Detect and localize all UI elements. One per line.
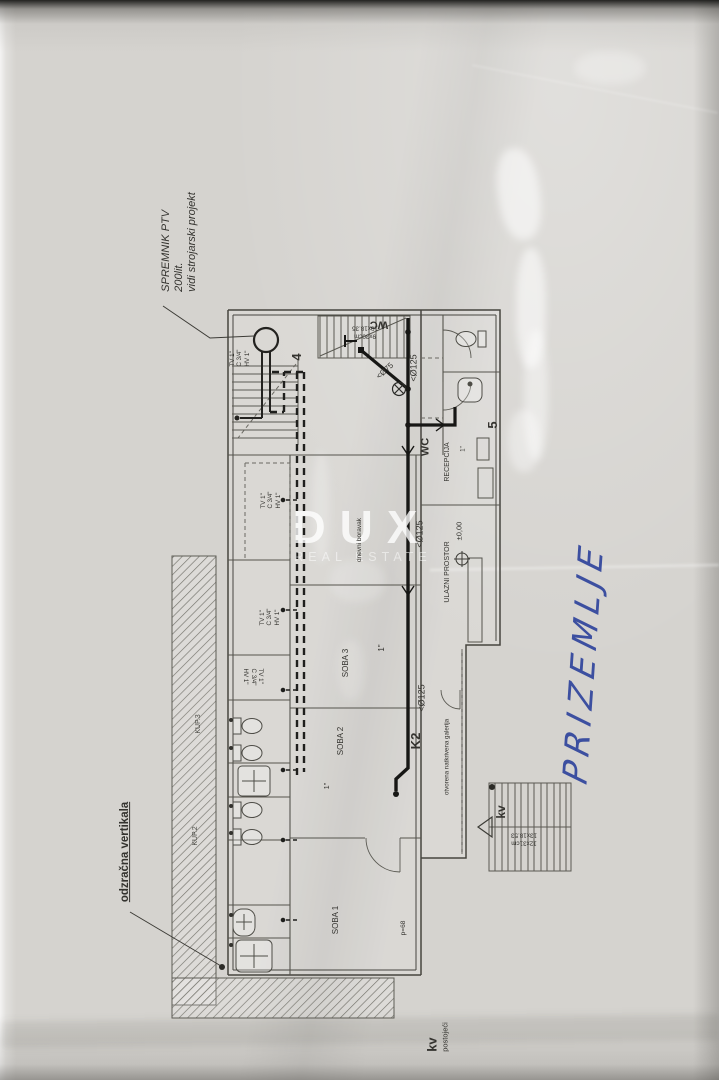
pipe-label-one-inch-2: 1" [324, 783, 332, 789]
toilet-icon [233, 718, 262, 734]
annotation-spremnik-line2: 200lit. [173, 192, 186, 292]
label-ulazni-prostor: ULAZNI PROSTOR [444, 541, 452, 602]
pipe-label-one-inch-3: 1" [460, 446, 467, 451]
fitting-labels-a: TV 1" C 3/4" HV 1" [229, 350, 251, 367]
pipe-label-d125-1: <Ø125 [409, 354, 420, 381]
annotation-spremnik-line3: vidi strojarski projekt [187, 192, 200, 292]
toilet-icon [456, 331, 486, 347]
annotation-spremnik: SPREMNIK PTV 200lit. vidi strojarski pro… [160, 192, 200, 292]
fitting-c: C 3/4" [249, 669, 256, 686]
fitting-hv: HV 1" [242, 669, 249, 686]
stairs-upper-line1: 9x30cm [352, 332, 378, 340]
mark-4: 4 [289, 353, 305, 360]
label-soba3: SOBA 3 [341, 649, 351, 677]
fitting-tv: TV 1" [257, 669, 264, 686]
stairs-lower-line2: 13x18.53 [511, 831, 537, 839]
pipe-label-d125-2: <Ø125 [415, 520, 426, 547]
pipe-label-p68: p=68 [400, 921, 408, 936]
scanned-floor-plan-page: SPREMNIK PTV 200lit. vidi strojarski pro… [0, 0, 719, 1080]
fitting-tv: TV 1" [229, 350, 236, 367]
annotation-odzracna-vertikala: odzračna vertikala [119, 802, 133, 902]
hatch-wall-bottom [172, 978, 394, 1018]
pipe-label-d125-3: <Ø125 [417, 684, 428, 711]
label-galerija: otvorena natkrivena galerija [443, 719, 450, 795]
stairs-upper-dimensions: 9x30cm 10x18.35 [352, 324, 378, 339]
toilet-icon [233, 745, 262, 761]
pipe-label-k2: K2 [408, 733, 424, 750]
label-soba1: SOBA 1 [331, 906, 341, 934]
stairs-external [478, 783, 571, 871]
stairs-lower-line1: 12x31cm [511, 839, 537, 847]
fitting-tv: TV 1" [259, 609, 266, 626]
label-level: ±0,00 [455, 522, 464, 541]
annotation-spremnik-line1: SPREMNIK PTV [160, 192, 173, 292]
shower-icon [236, 940, 272, 972]
label-soba2: SOBA 2 [336, 727, 346, 755]
annotation-kv: kv [425, 1022, 441, 1052]
shower-icon [238, 766, 270, 796]
fitting-labels-d: TV 1" C 3/4" HV 1" [242, 669, 264, 686]
fitting-hv: HV 1" [275, 492, 282, 509]
annotation-postojeci: postojeći [440, 1022, 449, 1052]
label-kup2: KUP.2 [192, 826, 200, 845]
label-recepcija: RECEPCIJA [444, 442, 452, 481]
label-dnevni-boravak: dnevni boravak [356, 518, 364, 562]
label-kv-stairs: kv [494, 805, 508, 818]
label-kup3: KUP.3 [195, 714, 203, 733]
toilet-icon [233, 802, 262, 818]
fitting-labels-c: TV 1" C 3/4" HV 1" [259, 609, 281, 626]
fitting-hv: HV 1" [274, 609, 281, 626]
stairs-upper-line2: 10x18.35 [352, 324, 378, 332]
toilet-icon [233, 829, 262, 845]
sink-icon [458, 378, 482, 402]
fitting-c: C 3/4" [236, 350, 243, 367]
hatch-wall-left [172, 556, 216, 1005]
fitting-labels-b: TV 1" C 3/4" HV 1" [260, 492, 282, 509]
label-wc-mid: WC [419, 438, 432, 456]
building-footprint [228, 310, 500, 975]
annotation-kv-postojeci: kv postojeći [425, 1022, 450, 1052]
fitting-hv: HV 1" [244, 350, 251, 367]
fitting-c: C 3/4" [266, 609, 273, 626]
fitting-tv: TV 1" [260, 492, 267, 509]
fitting-c: C 3/4" [267, 492, 274, 509]
pipe-label-one-inch-1: 1" [377, 644, 387, 651]
mark-5: 5 [485, 421, 501, 428]
stairs-lower-dimensions: 12x31cm 13x18.53 [511, 831, 537, 846]
sink-icon [233, 909, 255, 936]
